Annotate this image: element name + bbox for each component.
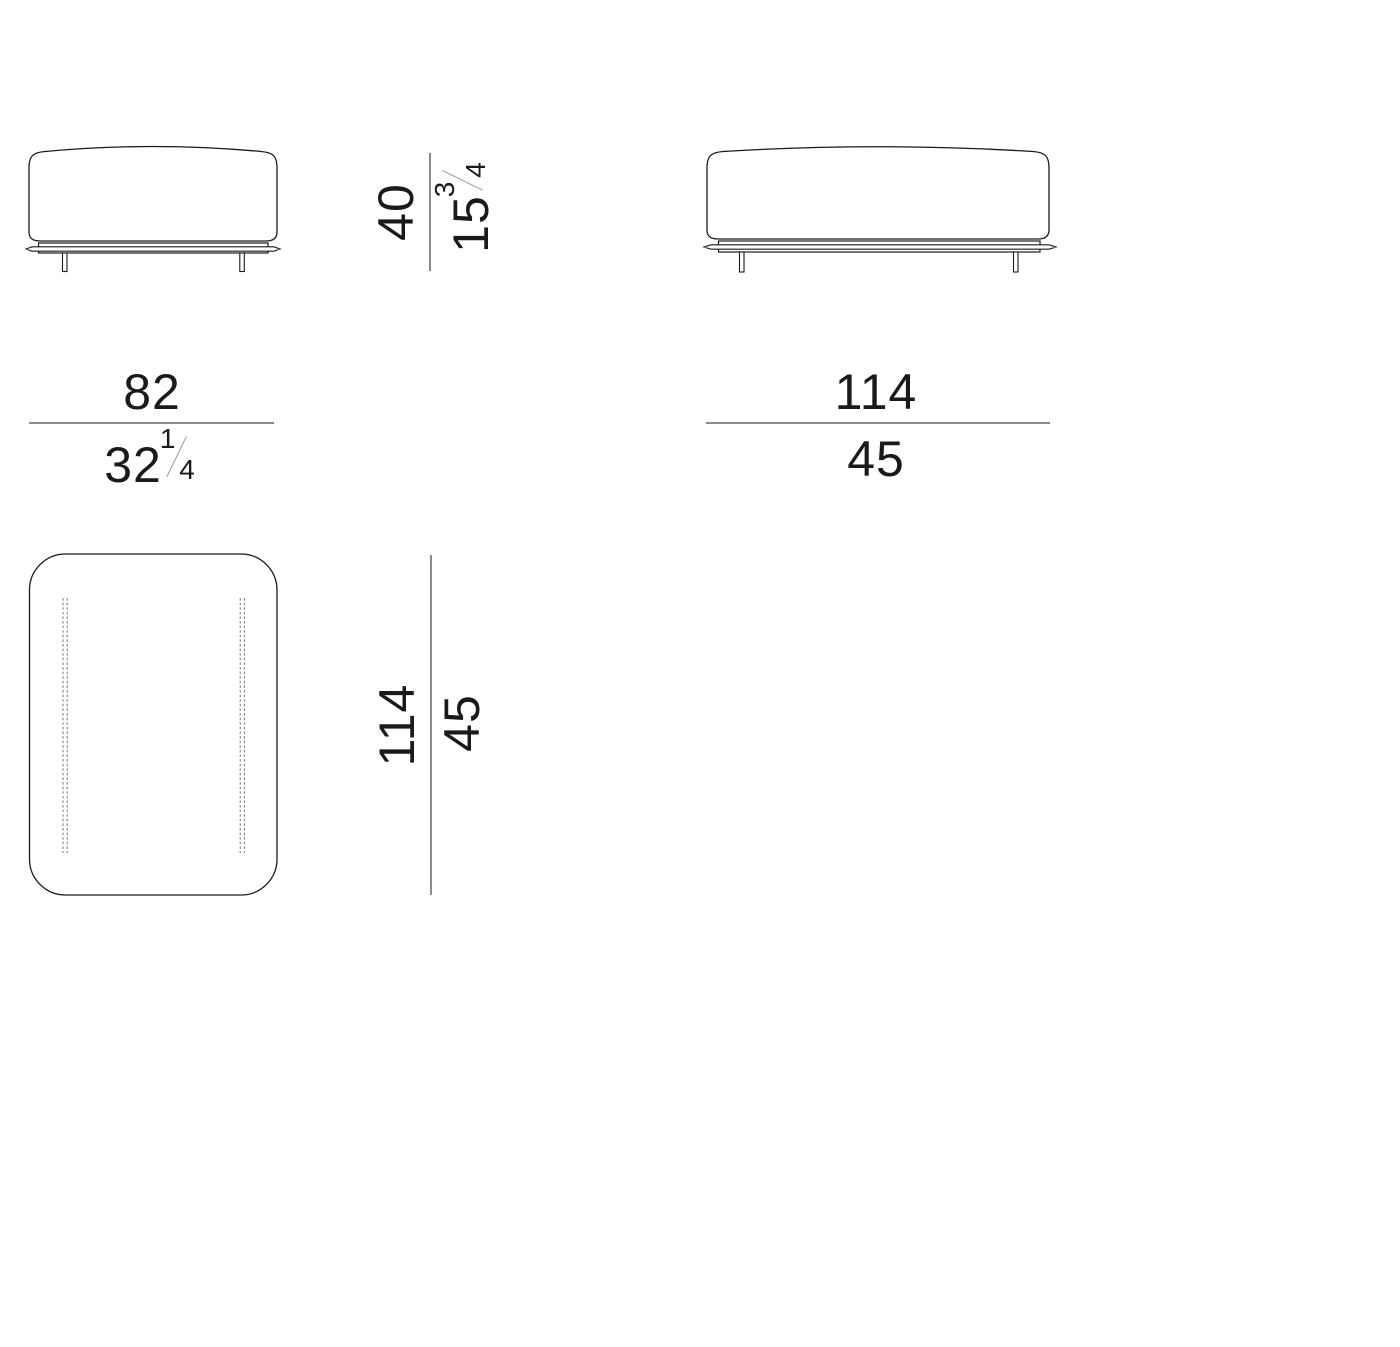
large-width-inches-value: 45: [847, 431, 905, 487]
depth-cm-value: 114: [369, 684, 425, 767]
height-cm-value: 40: [368, 183, 424, 241]
small-width-dimension-line: [29, 422, 274, 424]
large-width-inches-label: 45: [847, 434, 905, 484]
base-rail: [704, 245, 1056, 249]
base-rail: [26, 247, 280, 251]
large-width-dimension-line: [706, 422, 1050, 424]
large-width-cm-value: 114: [835, 364, 918, 420]
depth-cm-label: 114: [372, 684, 422, 767]
fraction-numerator: 3: [431, 182, 459, 198]
cushion-outline: [29, 147, 277, 242]
right-leg: [240, 253, 245, 272]
front-view-small: [25, 140, 285, 280]
small-width-inches-label: 3214: [104, 432, 194, 490]
top-view: [25, 548, 285, 900]
cushion-outline: [707, 147, 1049, 239]
depth-dimension-line: [430, 555, 432, 895]
height-inches-fraction: 34: [438, 163, 488, 195]
left-leg: [740, 252, 745, 272]
fraction-numerator: 1: [160, 425, 176, 453]
front-view-large: [700, 140, 1060, 280]
fraction-denominator: 4: [179, 456, 195, 484]
depth-inches-label: 45: [437, 694, 487, 752]
small-width-inches-whole: 32: [104, 437, 162, 493]
small-width-cm-label: 82: [123, 367, 181, 417]
right-leg: [1014, 252, 1019, 272]
small-width-cm-value: 82: [123, 364, 181, 420]
left-leg: [63, 253, 68, 272]
height-inches-whole: 15: [443, 195, 499, 253]
dimension-drawing-page: 40 1534 82 3214 114 45 114 45: [0, 0, 1400, 1347]
height-dimension-line: [429, 153, 431, 271]
depth-inches-value: 45: [434, 694, 490, 752]
height-cm-label: 40: [371, 183, 421, 241]
height-inches-label: 1534: [438, 163, 496, 253]
large-width-cm-label: 114: [835, 367, 918, 417]
fraction-denominator: 4: [462, 162, 490, 178]
small-width-inches-fraction: 14: [162, 432, 194, 482]
